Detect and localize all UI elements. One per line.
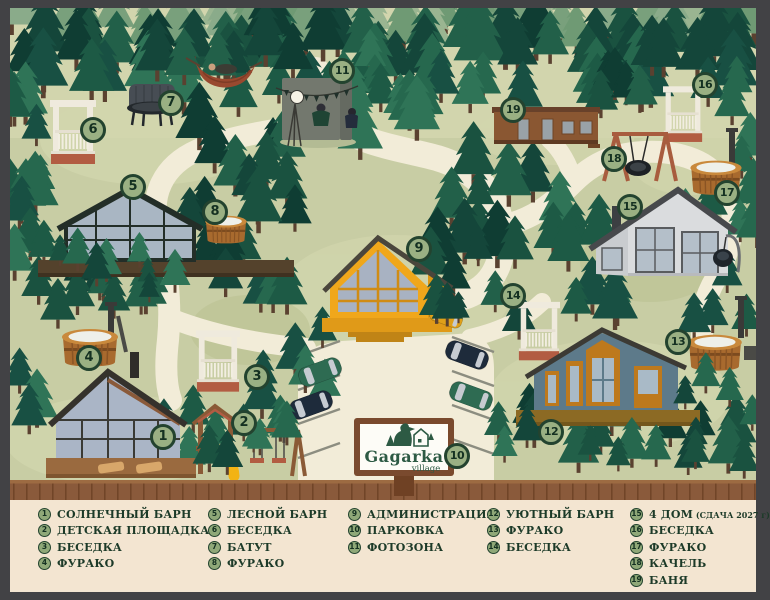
legend-item-10: 10ПАРКОВКА — [348, 524, 497, 537]
legend-label: ЛЕСНОЙ БАРН — [227, 508, 327, 521]
legend-label: ДЕТСКАЯ ПЛОЩАДКА — [57, 524, 209, 537]
legend-label: ФУРАКО — [649, 541, 706, 554]
legend-label: УЮТНЫЙ БАРН — [506, 508, 614, 521]
legend-badge: 9 — [348, 508, 361, 521]
legend-item-6: 6БЕСЕДКА — [208, 524, 327, 537]
legend-item-1: 1СОЛНЕЧНЫЙ БАРН — [38, 508, 209, 521]
legend-badge: 7 — [208, 541, 221, 554]
sign-sub: village — [411, 464, 441, 474]
legend-label: СОЛНЕЧНЫЙ БАРН — [57, 508, 192, 521]
banya-cabin — [492, 107, 600, 148]
legend-label: ФУРАКО — [506, 524, 563, 537]
legend-label: ФУРАКО — [227, 557, 284, 570]
legend-badge: 1 — [38, 508, 51, 521]
fence — [10, 480, 756, 500]
legend-label: КАЧЕЛЬ — [649, 557, 706, 570]
legend-badge: 13 — [487, 524, 500, 537]
legend-item-19: 19БАНЯ — [630, 574, 770, 587]
legend-item-9: 9АДМИНИСТРАЦИЯ — [348, 508, 497, 521]
legend-item-5: 5ЛЕСНОЙ БАРН — [208, 508, 327, 521]
legend-label: БЕСЕДКА — [57, 541, 122, 554]
legend-item-4: 4ФУРАКО — [38, 557, 209, 570]
legend-item-12: 12УЮТНЫЙ БАРН — [487, 508, 614, 521]
legend-label: БАНЯ — [649, 574, 688, 587]
legend-label: БЕСЕДКА — [649, 524, 714, 537]
legend-badge: 2 — [38, 524, 51, 537]
legend: 1СОЛНЕЧНЫЙ БАРН2ДЕТСКАЯ ПЛОЩАДКА3БЕСЕДКА… — [10, 500, 756, 592]
legend-label: АДМИНИСТРАЦИЯ — [367, 508, 497, 521]
legend-item-8: 8ФУРАКО — [208, 557, 327, 570]
legend-badge: 6 — [208, 524, 221, 537]
legend-badge: 15 — [630, 508, 643, 521]
legend-badge: 17 — [630, 541, 643, 554]
legend-item-17: 17ФУРАКО — [630, 541, 770, 554]
legend-column-4: 12УЮТНЫЙ БАРН13ФУРАКО14БЕСЕДКА — [487, 508, 614, 557]
legend-badge: 19 — [630, 574, 643, 587]
legend-badge: 18 — [630, 557, 643, 570]
legend-item-16: 16БЕСЕДКА — [630, 524, 770, 537]
legend-note: (СДАЧА 2027 г) — [693, 510, 770, 520]
legend-column-1: 1СОЛНЕЧНЫЙ БАРН2ДЕТСКАЯ ПЛОЩАДКА3БЕСЕДКА… — [38, 508, 209, 574]
legend-item-3: 3БЕСЕДКА — [38, 541, 209, 554]
legend-badge: 4 — [38, 557, 51, 570]
legend-item-11: 11ФОТОЗОНА — [348, 541, 497, 554]
legend-label: БАТУТ — [227, 541, 272, 554]
legend-label: 4 ДОМ (СДАЧА 2027 г) — [649, 508, 770, 521]
legend-label: ПАРКОВКА — [367, 524, 444, 537]
legend-badge: 5 — [208, 508, 221, 521]
legend-column-2: 5ЛЕСНОЙ БАРН6БЕСЕДКА7БАТУТ8ФУРАКО — [208, 508, 327, 574]
legend-column-3: 9АДМИНИСТРАЦИЯ10ПАРКОВКА11ФОТОЗОНА — [348, 508, 497, 557]
legend-label: ФОТОЗОНА — [367, 541, 443, 554]
legend-badge: 16 — [630, 524, 643, 537]
legend-item-7: 7БАТУТ — [208, 541, 327, 554]
legend-item-2: 2ДЕТСКАЯ ПЛОЩАДКА — [38, 524, 209, 537]
legend-badge: 11 — [348, 541, 361, 554]
legend-item-18: 18КАЧЕЛЬ — [630, 557, 770, 570]
legend-badge: 8 — [208, 557, 221, 570]
legend-column-5: 154 ДОМ (СДАЧА 2027 г)16БЕСЕДКА17ФУРАКО1… — [630, 508, 770, 590]
furako-8 — [205, 216, 246, 244]
legend-label: ФУРАКО — [57, 557, 114, 570]
legend-badge: 10 — [348, 524, 361, 537]
village-map: Gagarka village 123456789101112131415161… — [0, 0, 770, 600]
legend-item-15: 154 ДОМ (СДАЧА 2027 г) — [630, 508, 770, 521]
legend-badge: 12 — [487, 508, 500, 521]
legend-badge: 3 — [38, 541, 51, 554]
legend-item-13: 13ФУРАКО — [487, 524, 614, 537]
photo-zone — [276, 78, 358, 148]
legend-item-14: 14БЕСЕДКА — [487, 541, 614, 554]
legend-label: БЕСЕДКА — [506, 541, 571, 554]
legend-badge: 14 — [487, 541, 500, 554]
legend-label: БЕСЕДКА — [227, 524, 292, 537]
